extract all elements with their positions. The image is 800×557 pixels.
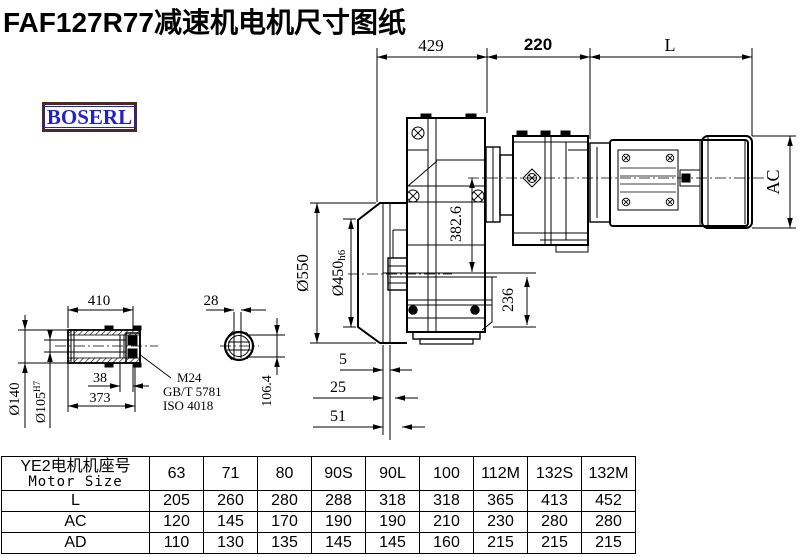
col-132M: 132M (582, 457, 636, 491)
dim-38: 38 (93, 371, 107, 386)
col-100: 100 (420, 457, 474, 491)
cell-AD-2: 135 (258, 533, 312, 554)
cell-AC-8: 280 (582, 512, 636, 533)
motor-bolt-icon (622, 154, 674, 206)
note-m24: M24 (177, 370, 202, 385)
dim-51: 51 (330, 408, 346, 425)
cell-L-0: 205 (150, 491, 204, 512)
dim-AC: AC (763, 169, 783, 194)
dim-410: 410 (88, 293, 111, 309)
header-line-cjk: YE2电机机座号 (2, 458, 149, 475)
dim-550: Ø550 (293, 254, 312, 292)
dim-105H7: Ø105H7 (32, 380, 49, 423)
note-iso: ISO 4018 (163, 398, 213, 413)
dim-236: 236 (500, 288, 517, 312)
cell-AC-2: 170 (258, 512, 312, 533)
center-lines (55, 178, 772, 346)
drawing-page: FAF127R77减速机电机尺寸图纸 BOSERL (0, 0, 800, 557)
cell-L-8: 452 (582, 491, 636, 512)
table-row-AC: AC 120 145 170 190 190 210 230 280 280 (2, 512, 636, 533)
cell-AC-0: 120 (150, 512, 204, 533)
cell-AD-5: 160 (420, 533, 474, 554)
col-90L: 90L (366, 457, 420, 491)
cell-AC-1: 145 (204, 512, 258, 533)
col-90S: 90S (312, 457, 366, 491)
cell-AC-6: 230 (474, 512, 528, 533)
header-line-en: Motor Size (2, 475, 149, 490)
cell-AC-5: 210 (420, 512, 474, 533)
dim-373: 373 (90, 391, 111, 406)
dim-28: 28 (204, 293, 219, 309)
cell-L-3: 288 (312, 491, 366, 512)
dim-220: 220 (524, 35, 552, 54)
cell-AD-4: 145 (366, 533, 420, 554)
cell-AD-6: 215 (474, 533, 528, 554)
col-71: 71 (204, 457, 258, 491)
row-label-AD: AD (2, 533, 150, 554)
row-label-AC: AC (2, 512, 150, 533)
r77-unit-view (486, 131, 588, 252)
cell-AD-7: 215 (528, 533, 582, 554)
dim-106: 106.4 (260, 375, 275, 407)
cell-L-4: 318 (366, 491, 420, 512)
row-label-L: L (2, 491, 150, 512)
note-gbt: GB/T 5781 (163, 384, 222, 399)
col-132S: 132S (528, 457, 582, 491)
cell-AD-8: 215 (582, 533, 636, 554)
cell-L-2: 280 (258, 491, 312, 512)
motor-size-table: YE2电机机座号 Motor Size 63 71 80 90S 90L 100… (1, 456, 636, 554)
cell-AC-3: 190 (312, 512, 366, 533)
table-header-row: YE2电机机座号 Motor Size 63 71 80 90S 90L 100… (2, 457, 636, 491)
dim-429: 429 (418, 36, 444, 55)
cell-L-6: 365 (474, 491, 528, 512)
dim-L: L (665, 35, 676, 55)
dim-450h6: Ø450h6 (330, 249, 348, 296)
table-header-motor-size: YE2电机机座号 Motor Size (2, 457, 150, 491)
col-63: 63 (150, 457, 204, 491)
dim-25: 25 (330, 379, 346, 396)
cell-L-5: 318 (420, 491, 474, 512)
cell-AD-0: 110 (150, 533, 204, 554)
table-row-AD: AD 110 130 135 145 145 160 215 215 215 (2, 533, 636, 554)
table-row-L: L 205 260 280 288 318 318 365 413 452 (2, 491, 636, 512)
cell-AC-4: 190 (366, 512, 420, 533)
dim-382: 382.6 (448, 206, 465, 242)
dim-140: Ø140 (7, 382, 23, 415)
cell-AD-3: 145 (312, 533, 366, 554)
dim-5: 5 (339, 351, 347, 368)
cell-L-1: 260 (204, 491, 258, 512)
cell-L-7: 413 (528, 491, 582, 512)
col-112M: 112M (474, 457, 528, 491)
motor-view (590, 136, 752, 228)
col-80: 80 (258, 457, 312, 491)
cell-AD-1: 130 (204, 533, 258, 554)
cell-AC-7: 280 (528, 512, 582, 533)
